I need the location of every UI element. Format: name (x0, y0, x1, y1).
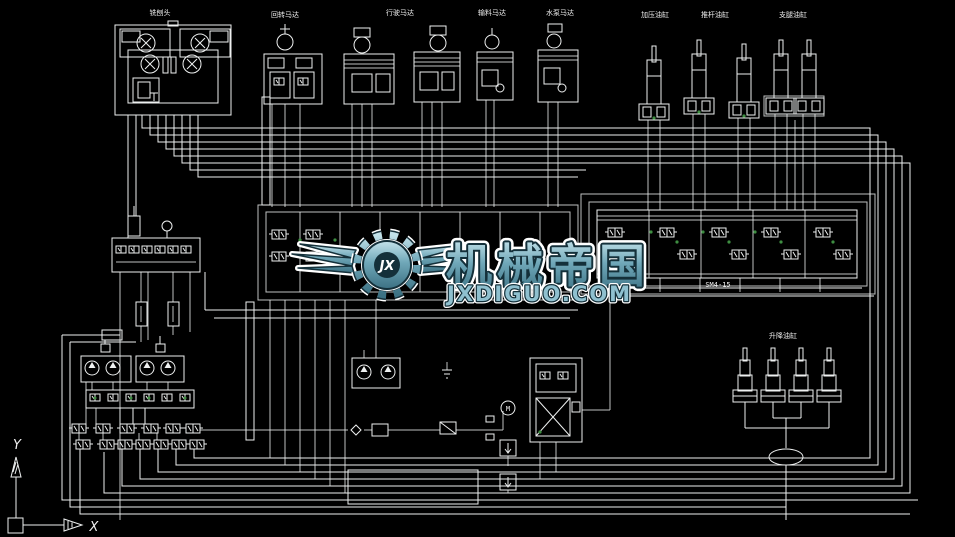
valve-glyph (677, 250, 697, 259)
x-axis-label: X (89, 520, 100, 535)
lift-cylinder-icon (761, 348, 785, 402)
y-axis-label: Y (13, 438, 22, 453)
pump-icon (106, 361, 120, 375)
watermark-monogram: JX (377, 259, 396, 274)
water-pump-motor-label: 水泵马达 (546, 8, 574, 17)
pump-icon (85, 361, 99, 375)
solenoid-valve-icon (151, 440, 171, 449)
relief-valve-icon (500, 440, 516, 456)
valve-glyph (558, 372, 568, 379)
outrigger-cylinder-icon (794, 40, 824, 114)
valve-model-label: SM4-15 (705, 281, 730, 289)
pump-station (69, 330, 207, 449)
valve-glyph (142, 246, 152, 253)
valve-glyph (761, 228, 781, 237)
milling-head-block: 铣刨头 (115, 8, 231, 115)
valve-glyph (540, 372, 550, 379)
pump-icon (183, 55, 201, 73)
outrigger-cylinder-label: 支腿油缸 (779, 10, 807, 19)
pump-icon (357, 365, 371, 379)
cad-viewport: 铣刨头 回转马达 行驶马达 (0, 0, 955, 537)
valve-glyph (657, 228, 677, 237)
solenoid-valve-icon (133, 440, 153, 449)
valve-glyph (813, 228, 833, 237)
push-rod-cylinder-icon (684, 40, 714, 114)
valve-glyph (269, 230, 289, 239)
lift-cylinder-label: 升降油缸 (769, 331, 797, 340)
watermark: JX 机械帝国 机械帝国 机械帝国 JXDIGUO.COM JXDIGUO.CO… (292, 235, 650, 306)
solenoid-valve-icon (163, 424, 183, 433)
milling-motor-icon (191, 34, 209, 52)
solenoid-valve-icon (169, 440, 189, 449)
motor-mark: M (506, 405, 510, 413)
valve-glyph (303, 230, 323, 239)
lift-cylinder-group: 升降油缸 (733, 331, 841, 520)
push-rod-cylinder-label: 推杆油缸 (701, 10, 729, 19)
valve-glyph (833, 250, 853, 259)
conveyor-motor-label: 输料马达 (478, 8, 506, 17)
oil-tank-icon (769, 449, 803, 465)
conveyor-motor-block: 输料马达 (477, 8, 513, 100)
travel-motor-block: 行驶马达 (344, 8, 460, 104)
valve-glyph (269, 252, 289, 261)
pipe-routing-network (62, 97, 918, 520)
solenoid-valve-icon (141, 424, 161, 433)
valve-glyph (129, 246, 139, 253)
watermark-site: JXDIGUO.COM JXDIGUO.COM JXDIGUO.COM (445, 282, 632, 306)
valve-glyph (108, 394, 118, 401)
valve-glyph (116, 246, 126, 253)
x-axis-arrow-icon (64, 519, 82, 531)
top-cylinder-group: 加压油缸 推杆油缸 支腿油缸 (639, 10, 824, 120)
valve-glyph (781, 250, 801, 259)
valve-glyph (155, 246, 165, 253)
valve-glyph (298, 78, 308, 85)
press-cylinder-label: 加压油缸 (641, 10, 669, 19)
rotary-motor-block: 回转马达 (264, 10, 322, 104)
solenoid-valve-icon (93, 424, 113, 433)
water-pump-motor-block: 水泵马达 (538, 8, 578, 102)
solenoid-valve-icon (187, 440, 207, 449)
lift-cylinder-icon (733, 348, 757, 402)
milling-head-label: 铣刨头 (150, 8, 171, 17)
solenoid-valve-icon (115, 440, 135, 449)
valve-glyph (181, 246, 191, 253)
valve-glyph (709, 228, 729, 237)
solenoid-valve-icon (69, 424, 89, 433)
watermark-site-text: JXDIGUO.COM (445, 282, 632, 306)
valve-glyph (274, 78, 284, 85)
tank-symbol (442, 370, 452, 378)
solenoid-valve-icon (117, 424, 137, 433)
solenoid-valve-icon (183, 424, 203, 433)
travel-motor-label: 行驶马达 (386, 8, 414, 17)
outrigger-cylinder-icon (766, 40, 796, 114)
pump-icon (161, 361, 175, 375)
rotary-motor-label: 回转马达 (271, 10, 299, 19)
left-manifold (112, 206, 200, 326)
lift-cylinder-icon (817, 348, 841, 402)
pump-icon (381, 365, 395, 379)
pump-icon (141, 55, 159, 73)
push-rod-cylinder-icon (729, 44, 759, 118)
press-cylinder-icon (639, 46, 669, 120)
valve-glyph (168, 246, 178, 253)
pump-icon (140, 361, 154, 375)
y-axis-arrow-icon (11, 457, 21, 477)
solenoid-valve-icon (73, 440, 93, 449)
valve-glyph (605, 228, 625, 237)
aux-circuits: M (348, 358, 582, 504)
milling-motor-icon (137, 34, 155, 52)
relief-valve-icon (500, 474, 516, 490)
valve-glyph (729, 250, 749, 259)
lift-cylinder-icon (789, 348, 813, 402)
solenoid-valve-icon (97, 440, 117, 449)
valve-glyph (162, 394, 172, 401)
check-valve-icon (351, 425, 361, 435)
ucs-icon: Y X (8, 438, 100, 535)
hydraulic-schematic: 铣刨头 回转马达 行驶马达 (0, 0, 955, 537)
